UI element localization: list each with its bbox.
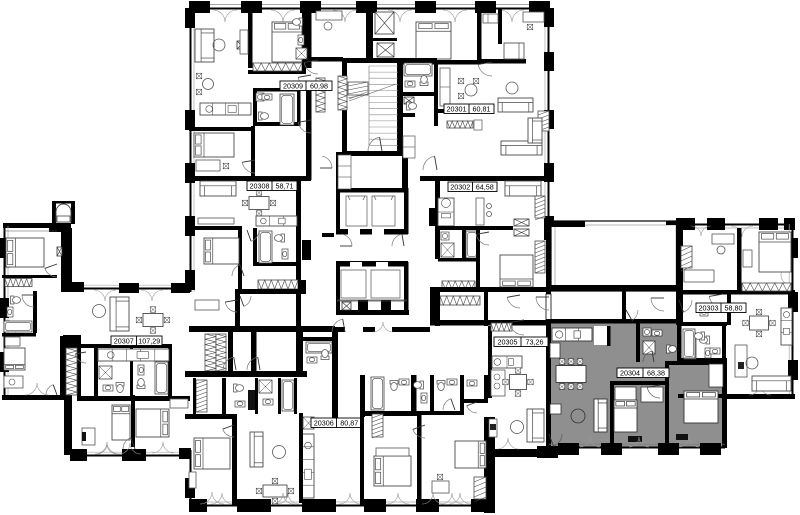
- svg-text:73,26: 73,26: [526, 337, 544, 346]
- svg-text:20307: 20307: [114, 336, 134, 345]
- svg-text:60,81: 60,81: [473, 104, 491, 113]
- svg-text:20305: 20305: [498, 337, 518, 346]
- svg-text:58,80: 58,80: [725, 303, 743, 312]
- svg-text:68,38: 68,38: [647, 368, 665, 377]
- svg-text:80,87: 80,87: [340, 418, 358, 427]
- svg-text:20303: 20303: [699, 303, 719, 312]
- svg-text:64,58: 64,58: [476, 182, 494, 191]
- svg-text:20304: 20304: [620, 368, 640, 377]
- svg-text:20302: 20302: [450, 182, 470, 191]
- svg-text:20306: 20306: [314, 418, 334, 427]
- svg-text:107,29: 107,29: [138, 336, 160, 345]
- svg-text:60,98: 60,98: [310, 81, 328, 90]
- svg-text:20309: 20309: [283, 81, 303, 90]
- svg-text:58,71: 58,71: [276, 181, 294, 190]
- svg-text:20308: 20308: [250, 181, 270, 190]
- svg-text:20301: 20301: [447, 104, 467, 113]
